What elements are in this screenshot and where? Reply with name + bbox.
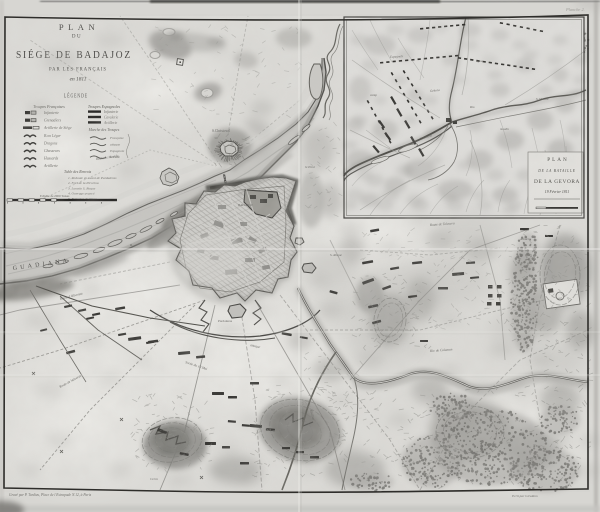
- svg-text:Ecrit par Giraldon: Ecrit par Giraldon: [511, 494, 538, 498]
- svg-text:Planche 2.: Planche 2.: [565, 7, 585, 12]
